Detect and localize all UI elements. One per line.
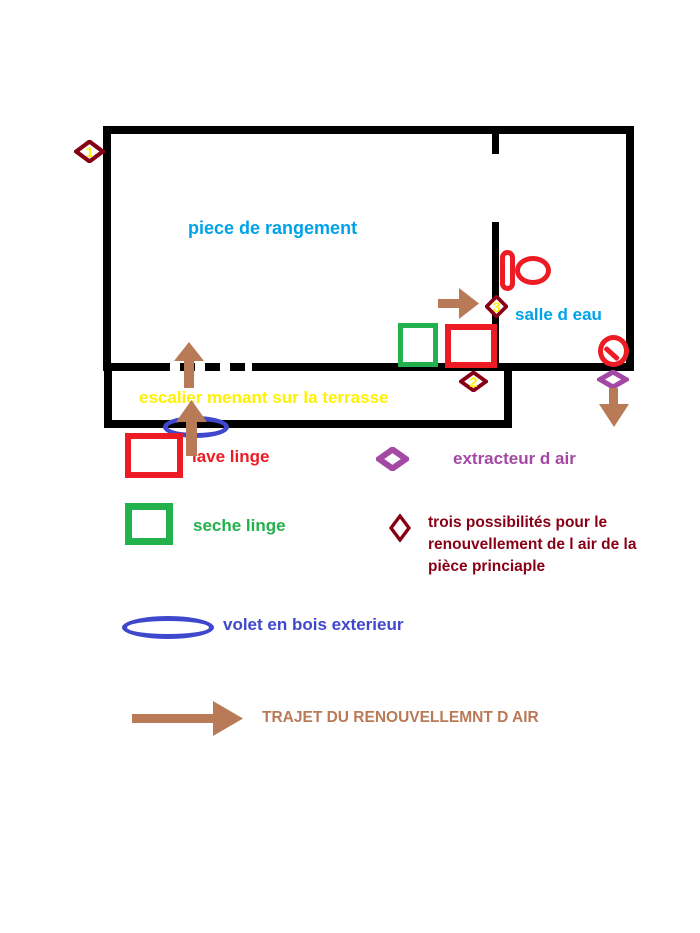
- air-option-marker-2: 2: [459, 371, 488, 392]
- marker-number: 3: [485, 295, 508, 318]
- bathroom-partition-wall-upper: [492, 130, 499, 154]
- outer-wall-right: [626, 126, 634, 371]
- marker-number: 1: [74, 140, 105, 163]
- main-room-label: piece de rangement: [188, 219, 357, 239]
- dryer-square-plan: [398, 323, 438, 367]
- floor-plan-drawing: 1 2 3 piece de rangement salle d eau esc…: [0, 0, 700, 933]
- legend-dryer-swatch: [125, 503, 173, 545]
- washer-square-plan: [445, 324, 497, 368]
- extractor-diamond-plan: [597, 370, 629, 389]
- air-option-marker-1: 1: [74, 140, 105, 163]
- air-path-arrow-down: [597, 388, 631, 428]
- legend-shutter-ellipse: [122, 616, 214, 639]
- legend-extractor-diamond: [376, 447, 409, 471]
- legend-air-path-arrow: [132, 699, 244, 739]
- stairs-up-arrow-lower: [172, 399, 212, 456]
- vent-slash-line: [603, 346, 620, 362]
- vent-circle-shape: [598, 335, 629, 367]
- bottom-wall-right-segment: [252, 363, 634, 371]
- stairs-box-left-wall: [104, 365, 112, 428]
- outer-wall-top: [103, 126, 634, 134]
- legend-shutter-label: volet en bois exterieur: [223, 616, 403, 635]
- stairs-up-arrow-upper: [171, 341, 207, 388]
- bathroom-label: salle d eau: [515, 306, 602, 325]
- legend-air-options-diamond: [389, 514, 411, 542]
- toilet-tank-shape: [500, 250, 515, 291]
- legend-extractor-label: extracteur d air: [453, 450, 576, 469]
- toilet-bowl-shape: [515, 256, 551, 285]
- marker-number: 2: [459, 371, 488, 392]
- legend-air-path-label: TRAJET DU RENOUVELLEMNT D AIR: [262, 709, 539, 726]
- legend-air-options-label: trois possibilités pour le renouvellemen…: [428, 512, 646, 578]
- air-option-marker-3: 3: [485, 295, 508, 318]
- legend-dryer-label: seche linge: [193, 517, 286, 536]
- stairs-box-right-wall: [504, 365, 512, 428]
- air-path-arrow-right: [438, 285, 480, 322]
